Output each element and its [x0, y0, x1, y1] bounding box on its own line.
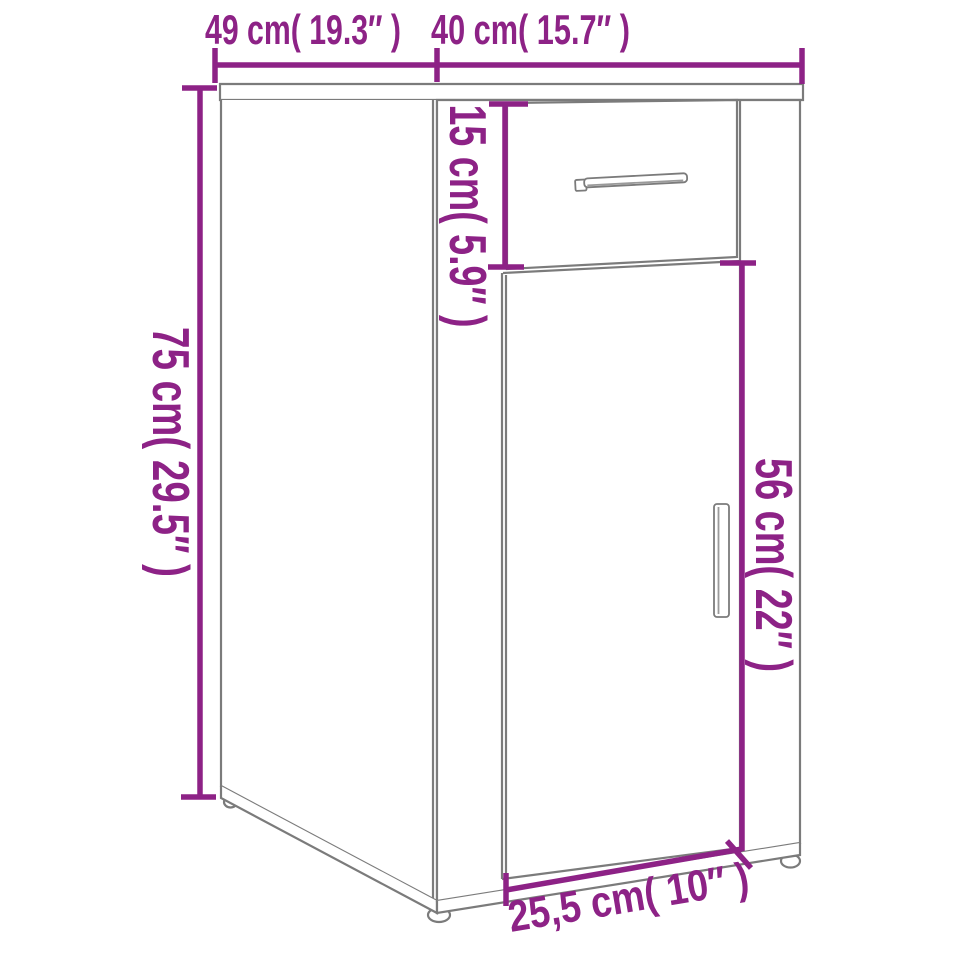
dimension-diagram: 49 cm( 19.3″ ) 40 cm( 15.7″ ) 75 cm( 29.… — [0, 0, 955, 955]
label-door-height: 56 cm( 22″ ) — [744, 458, 802, 672]
label-top-width: 49 cm( 19.3″ ) — [205, 6, 401, 53]
door-handle — [714, 504, 729, 617]
dim-top — [215, 48, 802, 84]
label-height: 75 cm( 29.5″ ) — [141, 327, 199, 577]
cabinet-artwork — [220, 84, 803, 922]
door-handle-bar — [714, 504, 729, 617]
top-panel — [220, 84, 803, 100]
left-side-panel — [221, 100, 437, 901]
diagram-canvas: 49 cm( 19.3″ ) 40 cm( 15.7″ ) 75 cm( 29.… — [0, 0, 955, 955]
label-drawer-height: 15 cm( 5.9″ ) — [438, 105, 496, 328]
label-top-depth: 40 cm( 15.7″ ) — [431, 6, 630, 53]
